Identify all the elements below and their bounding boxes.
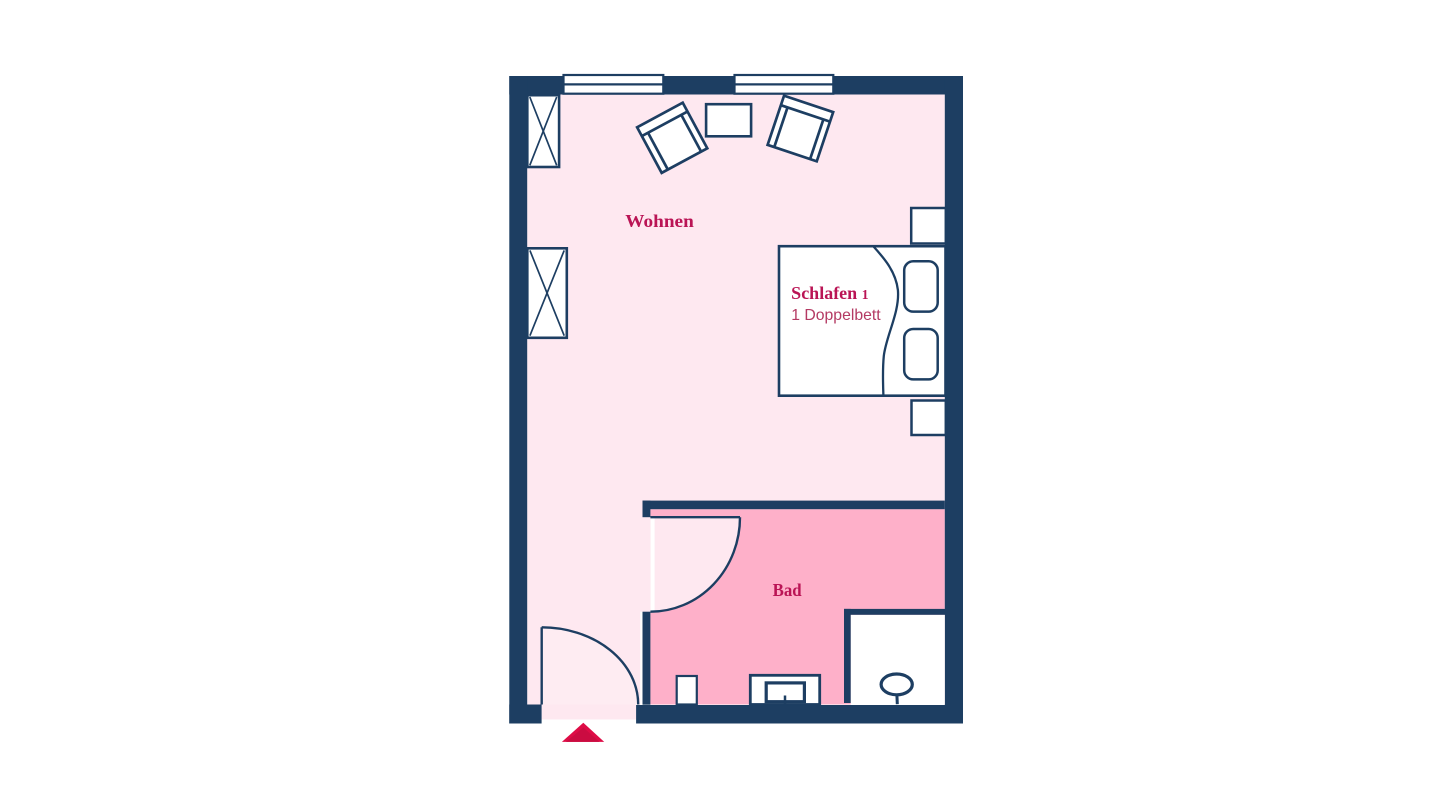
svg-text:Schlafen1: Schlafen1 — [791, 283, 869, 303]
svg-text:Wohnen: Wohnen — [625, 211, 694, 231]
svg-text:1 Doppelbett: 1 Doppelbett — [791, 307, 881, 324]
svg-text:Bad: Bad — [773, 580, 802, 600]
